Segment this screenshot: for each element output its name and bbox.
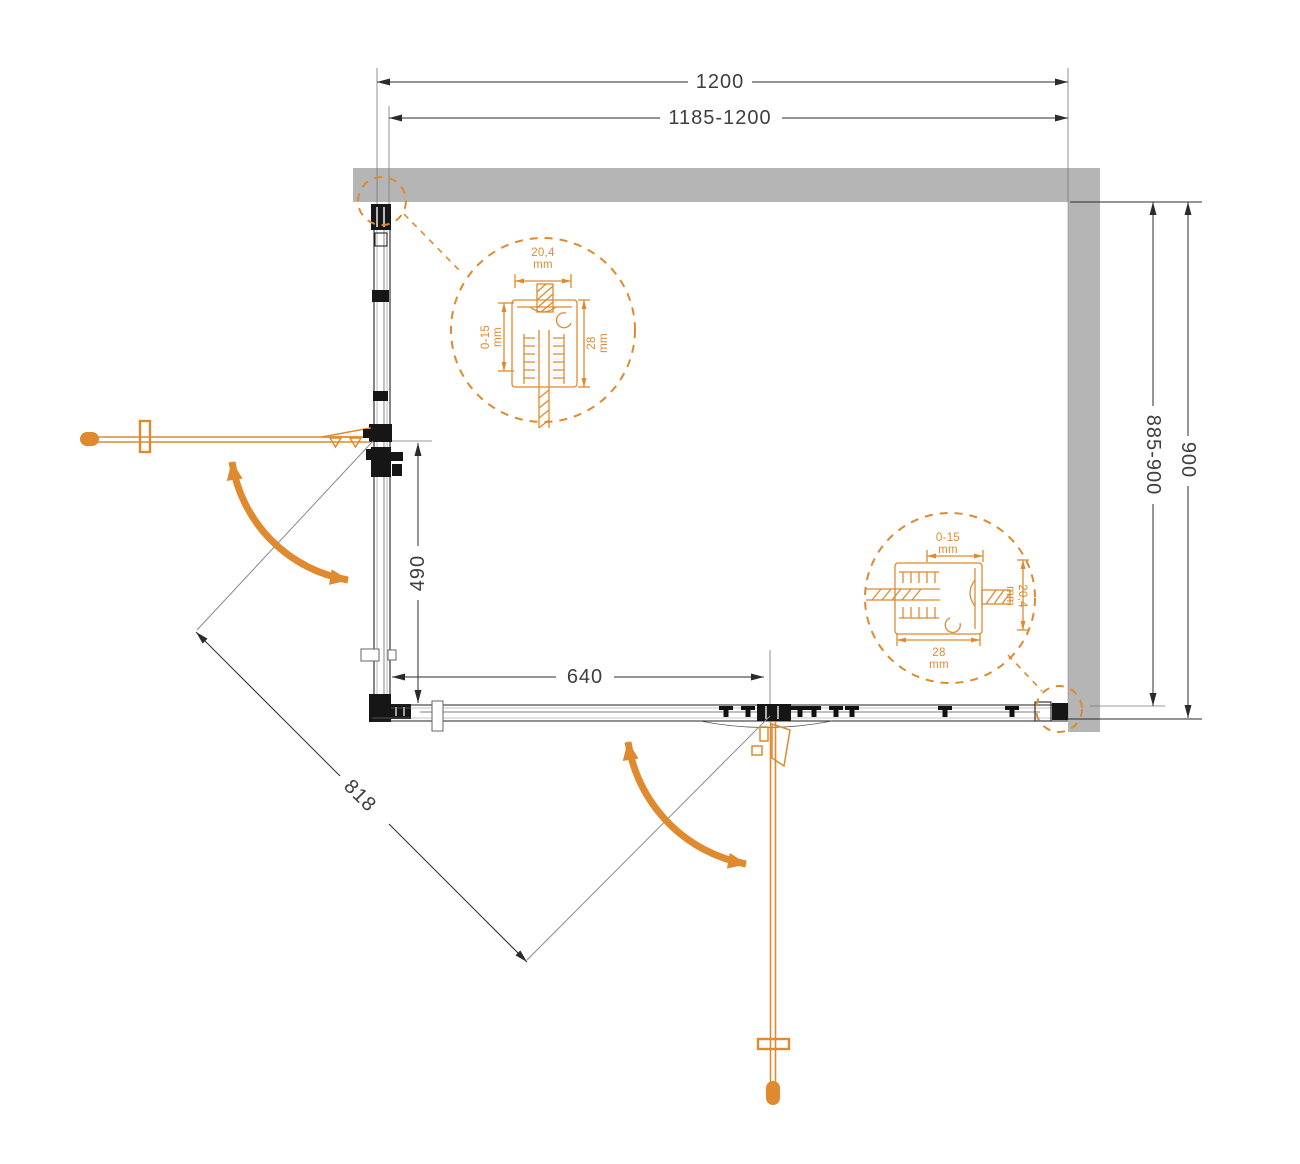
wall-right: [1068, 168, 1100, 732]
dim-label-885-900: 885-900: [1142, 415, 1164, 495]
dimension-top-range: 1185-1200: [389, 107, 1068, 129]
dimension-side-panel: 490: [407, 443, 429, 703]
detail-right-depth: 28: [932, 647, 945, 659]
door-open-traces: [197, 441, 770, 960]
detail-right-adjustment: 0-15: [936, 532, 960, 544]
dimension-diagonal-opening: 818: [196, 632, 527, 962]
shower-enclosure-plan: 1200 1185-1200 900 885-900 490 640 818: [0, 0, 1300, 1164]
dim-label-640: 640: [567, 666, 603, 688]
wall-profile-section-top: [498, 274, 590, 428]
swing-arc-left: [232, 462, 348, 580]
detail-top-width-unit: mm: [533, 259, 553, 271]
detail-top-depth: 28: [586, 336, 598, 349]
bottom-track: [372, 701, 1068, 731]
detail-top-depth-unit: mm: [598, 333, 610, 353]
enclosure-plan-drawing: 1200 1185-1200 900 885-900 490 640 818: [0, 0, 1300, 1164]
detail-top-width: 20,4: [531, 247, 555, 259]
dimension-right-outer: 900: [1177, 202, 1199, 718]
detail-top-adjustment-unit: mm: [492, 327, 504, 347]
door-bottom-knob: [766, 1081, 780, 1105]
wall-top: [353, 168, 1100, 202]
dimension-door-front: 640: [392, 666, 764, 688]
walls: [353, 168, 1100, 732]
dim-label-490: 490: [407, 555, 429, 591]
dim-label-1200: 1200: [696, 71, 745, 93]
detail-right-width: 20,4: [1016, 584, 1028, 608]
swing-arc-bottom: [628, 742, 746, 864]
door-left-knob: [80, 432, 99, 446]
detail-right-width-unit: mm: [1004, 586, 1016, 606]
dim-label-1185-1200: 1185-1200: [668, 107, 771, 129]
detail-callout-right: 0-15 mm mm 20,4 28 mm: [865, 513, 1082, 732]
dimension-right-range: 885-900: [1142, 202, 1164, 706]
detail-callout-top: 20,4 mm 0-15 mm 28 mm: [358, 177, 635, 428]
detail-top-adjustment: 0-15: [480, 325, 492, 349]
fixed-panel-left: [361, 204, 411, 722]
door-left-open: [80, 421, 379, 460]
detail-right-adjustment-unit: mm: [938, 544, 958, 556]
dimension-top-outer: 1200: [377, 71, 1068, 93]
door-bottom-handle: [758, 1039, 789, 1049]
door-bottom-open: [752, 722, 790, 1105]
dim-label-818: 818: [339, 775, 380, 816]
detail-right-depth-unit: mm: [929, 659, 949, 671]
dim-label-900: 900: [1177, 442, 1199, 478]
